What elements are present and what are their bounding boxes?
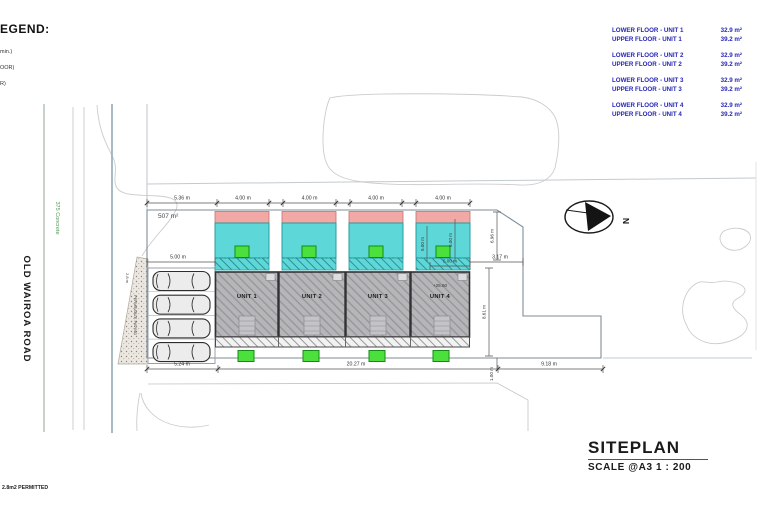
- road-name-label: OLD WAIROA ROAD: [21, 255, 32, 362]
- title-rule: [588, 459, 708, 460]
- upper-floor-unit1: [215, 212, 269, 271]
- car-icon: [153, 319, 210, 338]
- road-edge-lines: [44, 104, 147, 433]
- paving-width-label: 2.8 m: [125, 273, 130, 284]
- dim-label: 20.27 m: [347, 362, 366, 368]
- permitted-note: 2.8m2 PERMITTED: [2, 485, 48, 491]
- paving-label: PERMEABLE PAVING: [133, 295, 138, 335]
- road-surface-note: 375 Concrete: [54, 201, 60, 234]
- dim-label: 4.00 m: [368, 196, 384, 202]
- dim-label: 5.00 m: [443, 259, 457, 264]
- entry-marker: [238, 351, 254, 362]
- dim-label: 4.00 m: [435, 196, 451, 202]
- unit-label: UNIT 1: [237, 294, 258, 300]
- dim-label: 6.96 m: [490, 229, 495, 243]
- entry-marker: [369, 351, 385, 362]
- dim-label: 6.00 m: [448, 233, 453, 247]
- car-icon: [153, 272, 210, 291]
- dim-label: 5.00 m: [170, 255, 186, 261]
- lower-floor-block: UNIT 1 UNIT 2 UNIT 3 UNIT 4 +25.60: [216, 272, 470, 362]
- entry-marker: [302, 246, 316, 258]
- dim-label: 1.00 m: [489, 367, 494, 381]
- parking-bay: [148, 268, 215, 364]
- dim-label: 4.00 m: [302, 196, 318, 202]
- car-icon: [153, 295, 210, 314]
- entry-marker: [433, 351, 449, 362]
- car-icon: [153, 343, 210, 362]
- level-annotation: +25.60: [433, 283, 448, 288]
- north-arrow-icon: N: [565, 201, 631, 233]
- dim-label: 9.18 m: [541, 362, 557, 368]
- entry-marker: [235, 246, 249, 258]
- site-area-label: 507 m²: [158, 213, 179, 220]
- unit-label: UNIT 2: [302, 294, 322, 300]
- drawing-title: SITEPLAN: [588, 438, 708, 458]
- permeable-paving: 2.8 m PERMEABLE PAVING: [118, 257, 148, 364]
- drawing-scale: SCALE @A3 1 : 200: [588, 462, 708, 473]
- entry-marker: [303, 351, 319, 362]
- dim-label: 8.61 m: [482, 305, 487, 319]
- unit-label: UNIT 4: [430, 294, 451, 300]
- siteplan-sheet: EGEND: min.) OOR) R) LOWER FLOOR - UNIT …: [0, 0, 768, 512]
- dim-label: 3.17 m: [492, 255, 508, 261]
- title-block: SITEPLAN SCALE @A3 1 : 200: [588, 438, 708, 473]
- siteplan-drawing: OLD WAIROA ROAD 375 Concrete 2.8 m PERME…: [0, 0, 768, 512]
- upper-floor-unit3: [349, 212, 403, 271]
- entry-marker: [369, 246, 383, 258]
- dim-label: 5.36 m: [174, 196, 190, 202]
- unit-label: UNIT 3: [368, 294, 389, 300]
- upper-floor-unit2: [282, 212, 336, 271]
- dim-label: 5.00 m: [420, 237, 425, 251]
- dim-label: 4.00 m: [235, 196, 251, 202]
- north-label: N: [621, 218, 631, 224]
- dim-label: 5.24 m: [174, 362, 190, 368]
